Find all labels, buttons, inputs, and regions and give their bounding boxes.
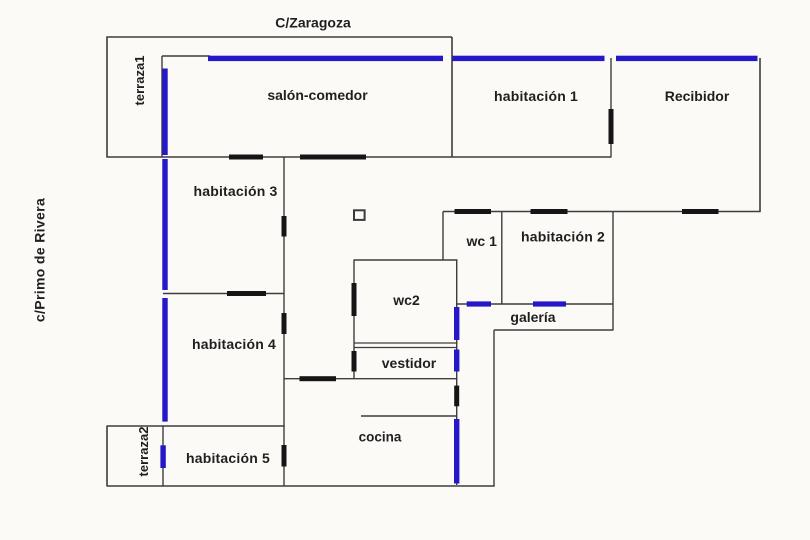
svg-text:habitación 1: habitación 1 xyxy=(494,88,578,104)
svg-text:C/Zaragoza: C/Zaragoza xyxy=(275,15,351,31)
svg-text:habitación 3: habitación 3 xyxy=(193,183,277,199)
svg-text:Recibidor: Recibidor xyxy=(665,88,730,104)
svg-text:cocina: cocina xyxy=(359,430,402,445)
svg-text:habitación 2: habitación 2 xyxy=(521,229,605,245)
svg-text:habitación 4: habitación 4 xyxy=(192,336,276,352)
svg-text:wc2: wc2 xyxy=(392,292,420,308)
svg-text:terraza1: terraza1 xyxy=(132,56,147,106)
svg-text:habitación 5: habitación 5 xyxy=(186,450,270,466)
svg-text:galería: galería xyxy=(510,309,555,325)
svg-text:wc 1: wc 1 xyxy=(466,233,498,249)
svg-text:c/Primo de Rivera: c/Primo de Rivera xyxy=(32,198,48,322)
svg-text:terraza2: terraza2 xyxy=(136,427,151,477)
svg-text:salón-comedor: salón-comedor xyxy=(267,87,368,103)
svg-text:vestidor: vestidor xyxy=(382,355,437,371)
